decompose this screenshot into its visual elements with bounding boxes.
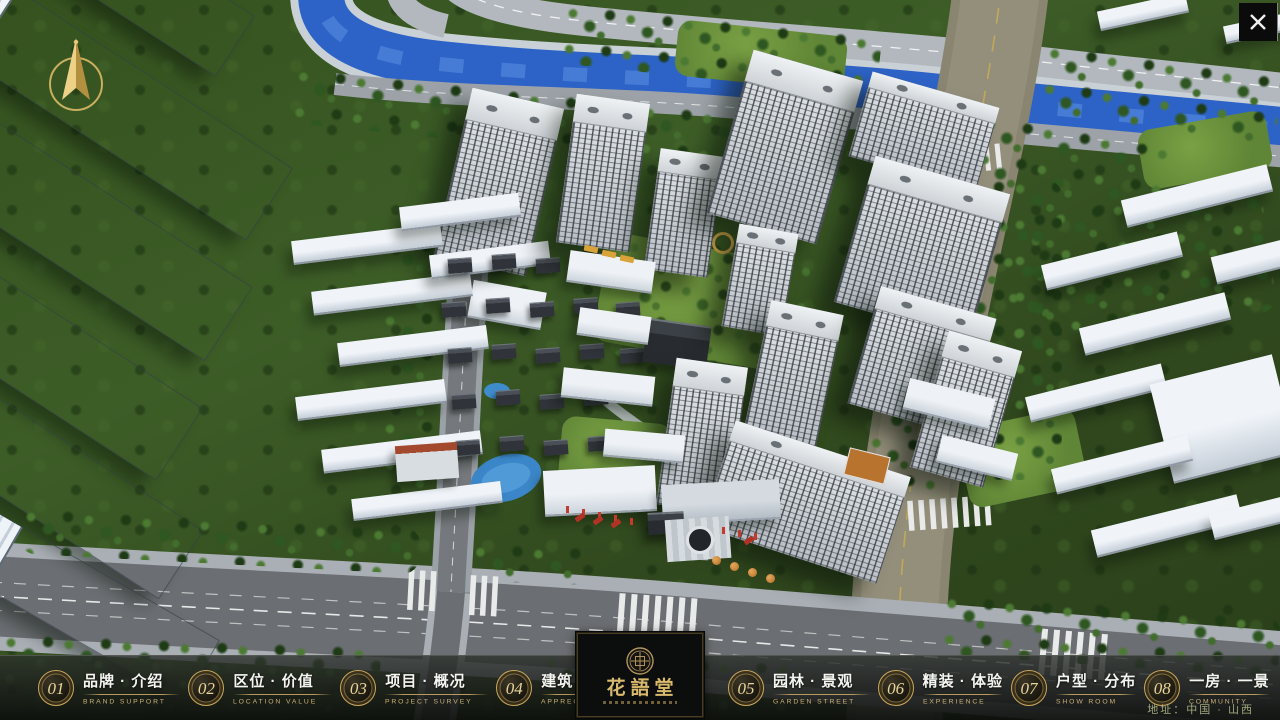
courtyard-house [492, 253, 517, 270]
nav-item-floorplan[interactable]: 07 户型 · 分布 SHOW ROOM [1007, 656, 1140, 720]
nav-divider [923, 694, 1003, 695]
flag [566, 506, 569, 513]
nav-subtitle: LOCATION VALUE [233, 698, 317, 706]
courtyard-house [448, 347, 473, 364]
nav-number-badge: 02 [188, 670, 224, 706]
courtyard-house [620, 347, 645, 364]
nav-divider [773, 694, 870, 695]
autumn-tree [748, 568, 757, 577]
autumn-tree [766, 574, 775, 583]
nav-number-badge: 06 [878, 670, 914, 706]
nav-subtitle: PROJECT SURVEY [385, 698, 473, 706]
nav-group-left: 01 品牌 · 介绍 BRAND SUPPORT 02 区位 · 价值 LOCA… [34, 656, 559, 720]
nav-subtitle: EXPERIENCE [923, 698, 986, 706]
courtyard-house [580, 343, 605, 360]
nav-label: 园林 · 景观 [773, 670, 853, 691]
nav-item-location[interactable]: 02 区位 · 价值 LOCATION VALUE [184, 656, 336, 720]
nav-number-badge: 01 [38, 670, 74, 706]
courtyard-house [442, 301, 467, 318]
courtyard-house [492, 343, 517, 360]
brand-title: 花語堂 [601, 679, 678, 698]
nav-number: 07 [1020, 680, 1037, 697]
courtyard-house [452, 393, 477, 410]
courtyard-house [544, 439, 569, 456]
nav-label: 精装 · 体验 [923, 670, 1003, 691]
close-button[interactable] [1239, 3, 1278, 41]
retail-building [543, 465, 657, 517]
tree-belt [469, 543, 590, 585]
courtyard-house [456, 439, 481, 456]
nav-item-interior[interactable]: 06 精装 · 体验 EXPERIENCE [874, 656, 1007, 720]
brand-logo-panel[interactable]: 花語堂 [576, 632, 704, 718]
nav-divider [83, 694, 180, 695]
autumn-tree [712, 556, 721, 565]
nav-subtitle: GARDEN STREET [773, 698, 855, 706]
nav-divider [385, 694, 488, 695]
nav-number: 01 [48, 680, 65, 697]
nav-item-project[interactable]: 03 项目 · 概况 PROJECT SURVEY [336, 656, 492, 720]
project-address: 地址：中国 · 山西 [1147, 701, 1254, 717]
courtyard-house [500, 435, 525, 452]
courtyard-house [530, 301, 555, 318]
nav-subtitle: BRAND SUPPORT [83, 698, 166, 706]
app-window: 01 品牌 · 介绍 BRAND SUPPORT 02 区位 · 价值 LOCA… [0, 0, 1280, 720]
close-icon [1247, 11, 1269, 33]
nav-number: 03 [350, 680, 367, 697]
nav-subtitle: SHOW ROOM [1056, 698, 1117, 706]
nav-divider [1056, 694, 1136, 695]
map-viewport[interactable] [0, 0, 1280, 720]
garden-sculpture [712, 232, 734, 254]
nav-number: 06 [887, 680, 904, 697]
nav-number: 08 [1154, 680, 1171, 697]
entrance-emblem [686, 526, 714, 554]
nav-number-badge: 03 [340, 670, 376, 706]
nav-number-badge: 05 [728, 670, 764, 706]
nav-number: 02 [198, 680, 215, 697]
nav-divider [233, 694, 332, 695]
nav-number-badge: 07 [1011, 670, 1047, 706]
nav-divider [1189, 694, 1269, 695]
nav-number-badge: 04 [496, 670, 532, 706]
nav-label: 一房 · 一景 [1189, 670, 1269, 691]
courtyard-house [536, 347, 561, 364]
courtyard-house [536, 257, 561, 274]
flag [738, 530, 741, 537]
nav-label: 区位 · 价值 [233, 670, 313, 691]
courtyard-house [486, 297, 511, 314]
north-road-branch [397, 0, 446, 26]
nav-label: 户型 · 分布 [1056, 670, 1136, 691]
nav-label: 项目 · 概况 [385, 670, 465, 691]
courtyard-house [448, 257, 473, 274]
school-building [395, 442, 459, 482]
nav-number: 05 [738, 680, 755, 697]
nav-label: 品牌 · 介绍 [83, 670, 163, 691]
brand-seal-icon [625, 646, 655, 676]
courtyard-house [496, 389, 521, 406]
compass-north-icon[interactable] [42, 30, 110, 114]
flag [722, 527, 725, 534]
nav-number: 04 [506, 680, 523, 697]
brand-subtitle-dashes [603, 701, 677, 704]
nav-item-garden[interactable]: 05 园林 · 景观 GARDEN STREET [724, 656, 874, 720]
autumn-tree [730, 562, 739, 571]
nav-item-brand[interactable]: 01 品牌 · 介绍 BRAND SUPPORT [34, 656, 184, 720]
flag [630, 518, 633, 525]
